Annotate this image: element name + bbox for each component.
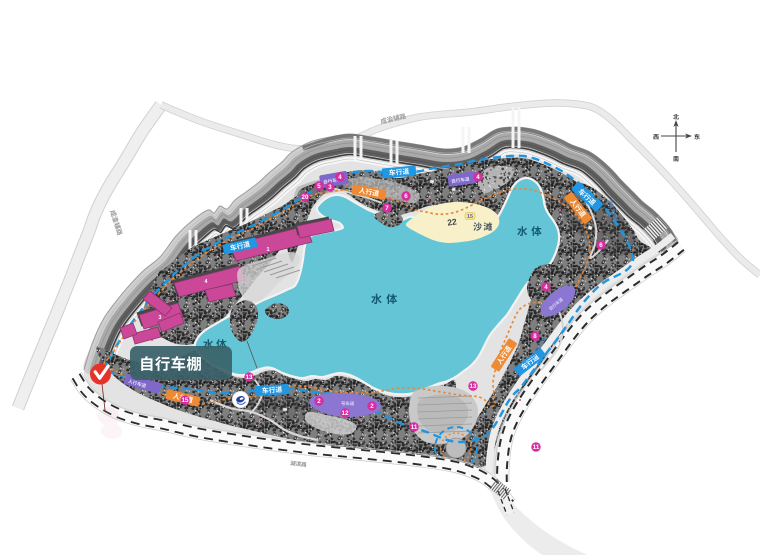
svg-text:11: 11: [533, 444, 540, 451]
svg-text:3: 3: [328, 184, 332, 191]
svg-text:3: 3: [159, 315, 162, 321]
svg-text:4: 4: [476, 174, 480, 181]
svg-text:2: 2: [317, 398, 321, 405]
svg-text:4: 4: [338, 174, 342, 181]
svg-text:1: 1: [266, 247, 269, 253]
svg-text:15: 15: [467, 214, 473, 220]
svg-text:22: 22: [447, 216, 458, 227]
svg-text:6: 6: [599, 242, 603, 249]
svg-text:15: 15: [182, 397, 189, 404]
svg-text:8: 8: [533, 333, 537, 340]
svg-text:7: 7: [385, 205, 389, 212]
svg-text:4: 4: [205, 279, 208, 285]
svg-text:2: 2: [370, 403, 374, 410]
svg-text:4: 4: [544, 284, 548, 291]
svg-text:20: 20: [302, 194, 309, 201]
svg-text:5: 5: [317, 183, 321, 190]
svg-text:11: 11: [411, 424, 418, 431]
svg-text:13: 13: [246, 374, 253, 381]
svg-text:12: 12: [342, 410, 349, 417]
svg-text:6: 6: [404, 193, 408, 200]
svg-text:13: 13: [470, 383, 477, 390]
